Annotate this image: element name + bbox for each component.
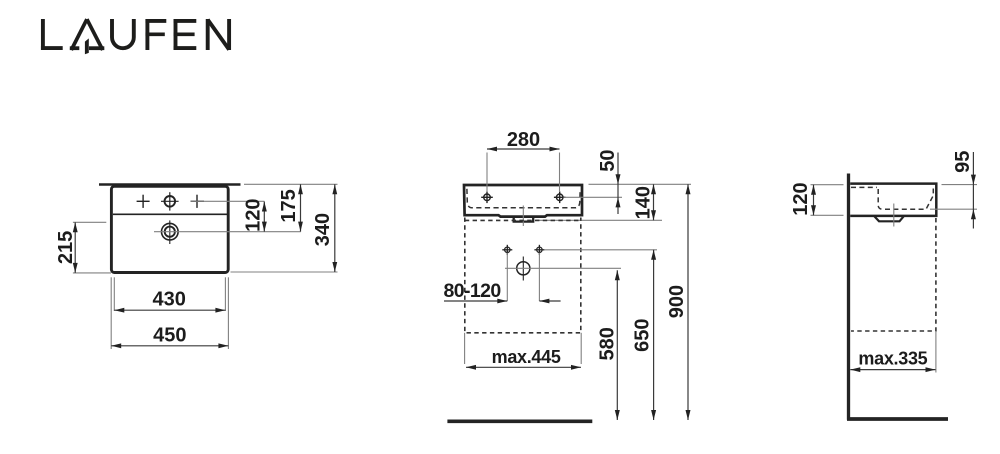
svg-text:650: 650 [632, 319, 654, 352]
svg-text:580: 580 [597, 327, 619, 360]
svg-text:175: 175 [278, 189, 300, 222]
svg-text:120: 120 [242, 199, 264, 232]
svg-text:450: 450 [153, 325, 186, 347]
svg-text:280: 280 [507, 129, 540, 151]
svg-text:max.335: max.335 [858, 348, 927, 368]
svg-text:215: 215 [55, 231, 77, 264]
svg-text:140: 140 [633, 186, 655, 219]
svg-text:120: 120 [790, 182, 812, 215]
svg-text:max.445: max.445 [492, 347, 561, 367]
svg-text:430: 430 [153, 289, 186, 311]
svg-text:95: 95 [952, 151, 974, 173]
svg-text:900: 900 [666, 285, 688, 318]
svg-text:50: 50 [597, 149, 619, 171]
svg-text:340: 340 [312, 213, 334, 246]
svg-text:80-120: 80-120 [444, 280, 502, 302]
